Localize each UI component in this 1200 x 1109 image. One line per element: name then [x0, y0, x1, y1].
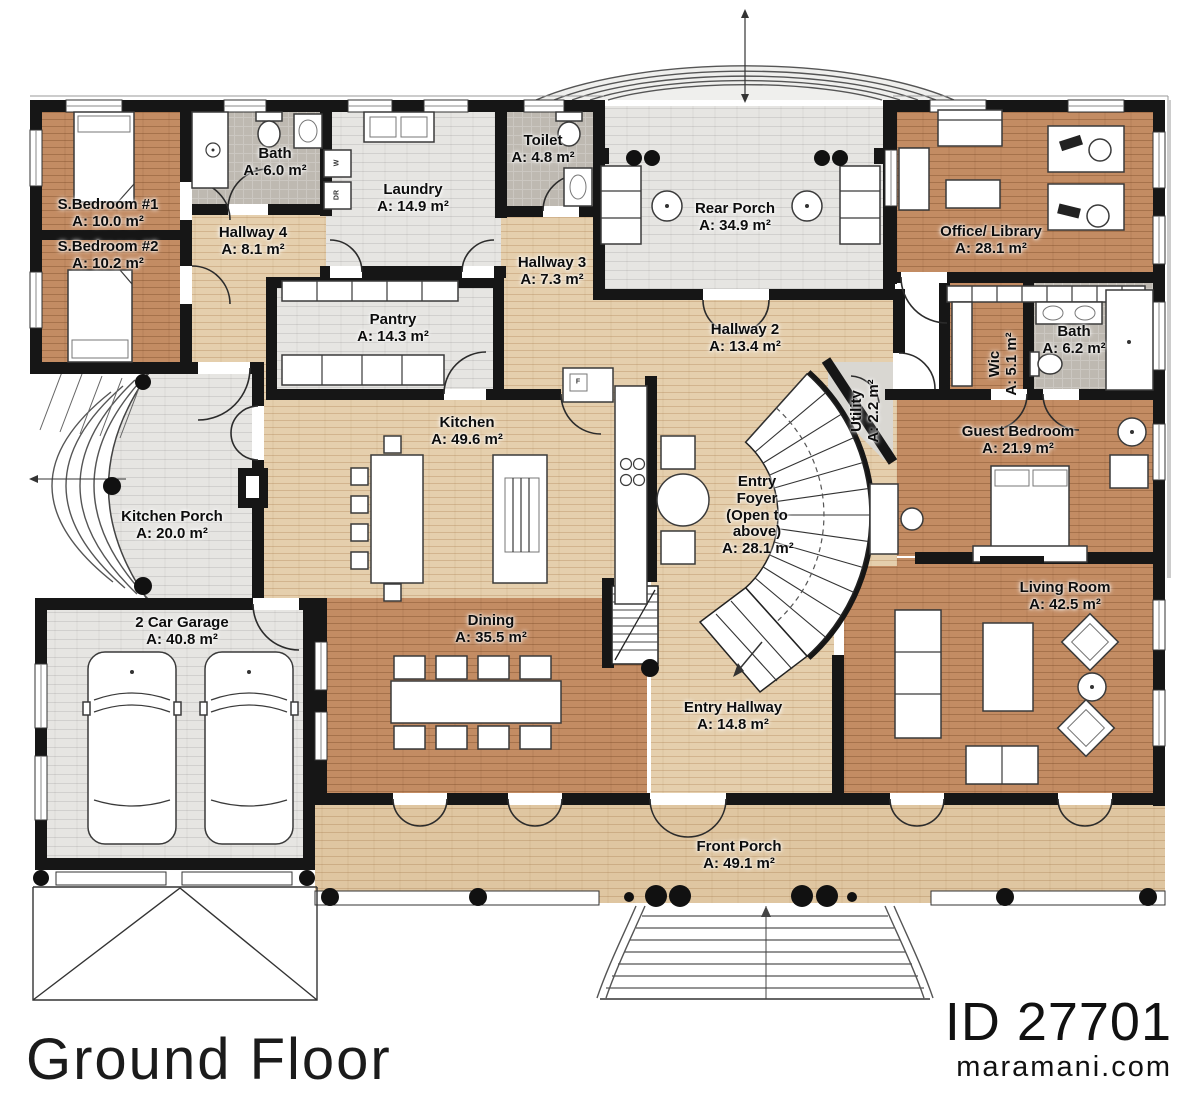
room-label-office-library: Office/ LibraryA: 28.1 m² — [940, 224, 1042, 258]
floor-title: Ground Floor — [26, 1026, 392, 1093]
room-label-hallway-3: Hallway 3A: 7.3 m² — [518, 255, 586, 289]
room-label-entry-hallway: Entry HallwayA: 14.8 m² — [684, 700, 782, 734]
room-label-front-porch: Front PorchA: 49.1 m² — [697, 839, 782, 873]
room-label-guest-bedroom: Guest BedroomA: 21.9 m² — [962, 424, 1075, 458]
room-label-wic: WicA: 5.1 m² — [987, 332, 1021, 395]
brand-block: ID 27701 maramani.com — [945, 994, 1172, 1084]
website: maramani.com — [945, 1051, 1172, 1084]
floor-plan: .wall{fill:#161616;} .gap{fill:#fff;} .w… — [0, 0, 1200, 1109]
room-label-rear-porch: Rear PorchA: 34.9 m² — [695, 201, 775, 235]
bedroom1-furniture — [74, 112, 134, 202]
room-label-entry-foyer: Entry Foyer(Open to above)A: 28.1 m² — [722, 474, 792, 558]
room-label-kitchen-porch: Kitchen PorchA: 20.0 m² — [121, 509, 223, 543]
room-label-hallway-2: Hallway 2A: 13.4 m² — [709, 322, 781, 356]
room-label-bath-2: BathA: 6.2 m² — [1042, 324, 1105, 358]
room-label-laundry: LaundryA: 14.9 m² — [377, 182, 449, 216]
plan-graphics: .wall{fill:#161616;} .gap{fill:#fff;} .w… — [0, 0, 1200, 1109]
dryer-label: DR — [334, 190, 341, 200]
washer-label: W — [334, 160, 341, 167]
room-label-bath-1: BathA: 6.0 m² — [243, 146, 306, 180]
room-label-pantry: PantryA: 14.3 m² — [357, 312, 429, 346]
room-label-hallway-4: Hallway 4A: 8.1 m² — [219, 225, 287, 259]
room-label-s-bedroom-2: S.Bedroom #2A: 10.2 m² — [58, 239, 159, 273]
room-label-kitchen: KitchenA: 49.6 m² — [431, 415, 503, 449]
room-label-living-room: Living RoomA: 42.5 m² — [1020, 580, 1111, 614]
room-label-garage: 2 Car GarageA: 40.8 m² — [135, 615, 228, 649]
room-label-utility: UtilityA: 2.2 m² — [849, 379, 883, 442]
fridge-label: F — [576, 379, 580, 386]
room-label-toilet: ToiletA: 4.8 m² — [511, 133, 574, 167]
room-label-dining: DiningA: 35.5 m² — [455, 613, 527, 647]
floor-plan-canvas: .wall{fill:#161616;} .gap{fill:#fff;} .w… — [0, 0, 1200, 1109]
bedroom2-furniture — [68, 270, 132, 362]
plan-id: ID 27701 — [945, 994, 1172, 1051]
room-label-s-bedroom-1: S.Bedroom #1A: 10.0 m² — [58, 197, 159, 231]
